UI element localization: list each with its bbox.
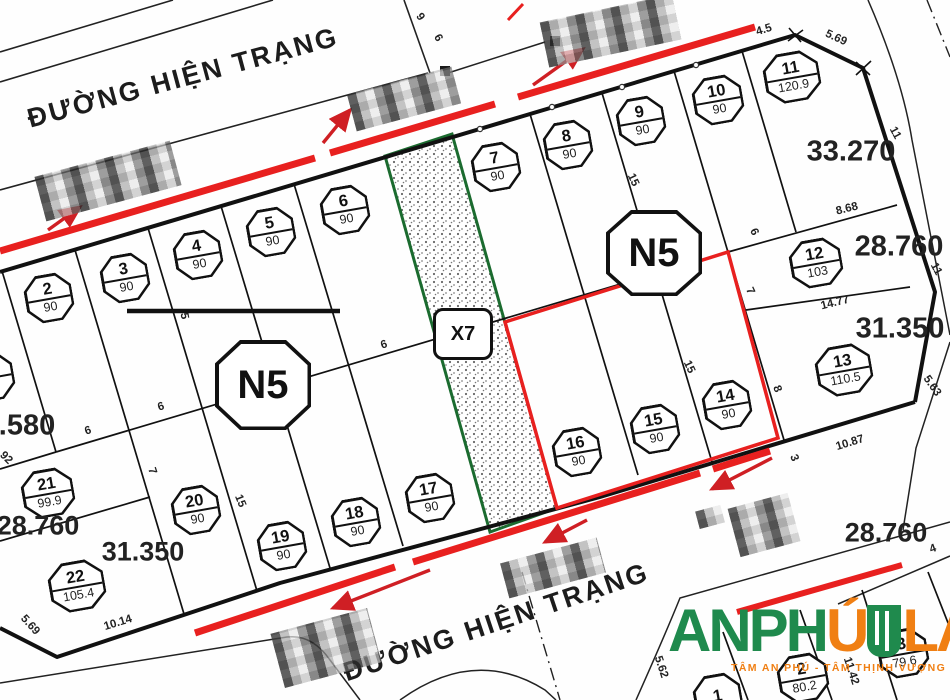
cadastral-map: ĐƯỜNG HIỆN TRẠNG ĐƯỜNG HIỆN TRẠNG N5 N5 … [0, 0, 950, 700]
measure-label: 28.760 [845, 518, 928, 549]
measure-label: .580 [0, 410, 55, 443]
block-label-n5-right: N5 [606, 210, 702, 296]
leader-line [440, 36, 560, 76]
measure-label: 31.350 [102, 537, 185, 568]
block-label-n5-left: N5 [215, 340, 311, 430]
logo-text-anph: ANPH [668, 597, 826, 664]
measure-label: 31.350 [856, 313, 945, 346]
logo-building-icon [867, 605, 901, 657]
anphu-land-logo: ANPHÚLA [668, 596, 950, 666]
logo-tagline: TÂM AN PHÚ - TÂM THỊNH VƯỢNG [731, 662, 946, 674]
logo-text-la: LA [902, 597, 950, 664]
logo-text-u-accent: Ú [826, 597, 866, 664]
strip-label-x7: X7 [433, 308, 493, 360]
measure-label: 28.760 [0, 511, 79, 542]
measure-label: 28.760 [855, 231, 944, 264]
measure-label: 33.270 [807, 136, 896, 169]
plot-number: 1 [695, 684, 740, 700]
